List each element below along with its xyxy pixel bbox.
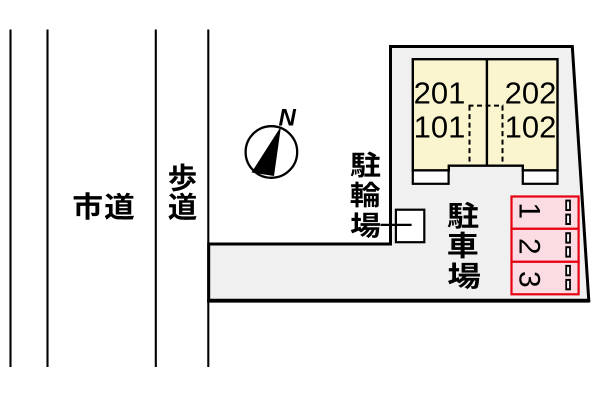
svg-text:2: 2 [513,238,546,255]
svg-text:101: 101 [414,110,466,145]
svg-text:N: N [279,105,297,132]
svg-text:201: 201 [414,76,466,111]
svg-text:3: 3 [513,271,546,288]
svg-text:202: 202 [505,76,557,111]
svg-text:102: 102 [505,110,557,145]
svg-text:1: 1 [513,202,546,219]
